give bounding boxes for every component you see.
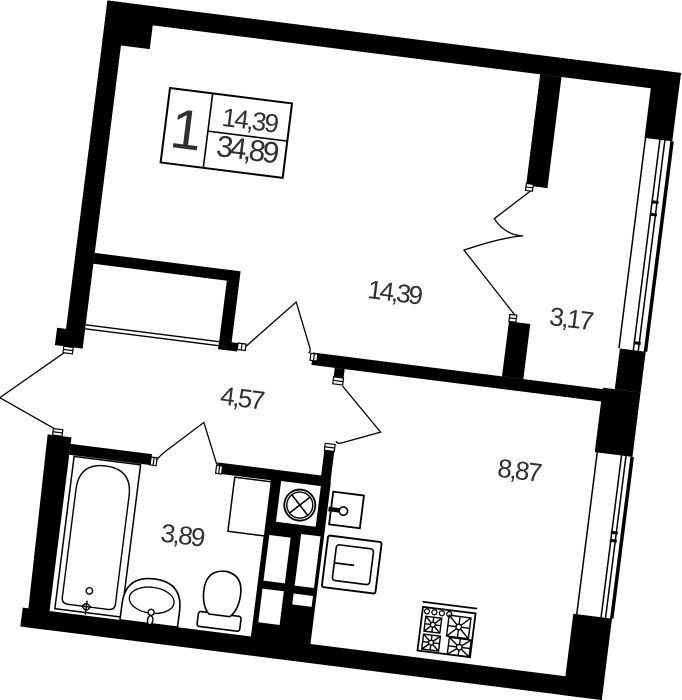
svg-text:14,39: 14,39 bbox=[366, 274, 424, 311]
svg-text:3,89: 3,89 bbox=[159, 518, 207, 553]
svg-text:3,17: 3,17 bbox=[548, 301, 596, 336]
svg-text:4,57: 4,57 bbox=[219, 380, 267, 415]
svg-text:8,87: 8,87 bbox=[496, 453, 544, 488]
